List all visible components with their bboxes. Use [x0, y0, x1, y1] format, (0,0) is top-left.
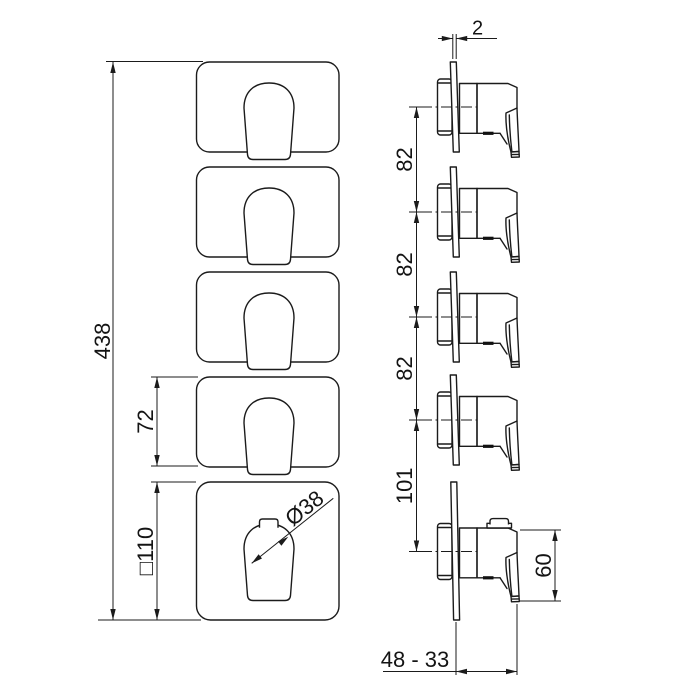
diverter-knob-front [260, 519, 279, 528]
dim-plate-size: □110 [133, 482, 196, 620]
trim-plate-1 [197, 62, 340, 160]
dim-label-72: 72 [133, 409, 158, 433]
dim-handle-height: 60 [520, 530, 561, 601]
dim-label-82-2: 82 [392, 252, 417, 276]
plate-edge-5 [451, 482, 460, 620]
dim-label-60: 60 [531, 553, 556, 577]
dim-label-2: 2 [472, 18, 483, 40]
valve-3 [421, 272, 519, 367]
dim-valve-spacing: 82 82 82 101 [392, 107, 423, 552]
handle-front-1 [244, 83, 294, 160]
technical-drawing-shower-valve: 438 72 □110 Ø38 [0, 0, 700, 700]
dim-label-438: 438 [90, 323, 115, 360]
handle-front-3 [244, 293, 294, 370]
dim-label-48-33: 48 - 33 [381, 647, 450, 672]
diverter-knob-cap [490, 519, 509, 525]
dim-label-82-1: 82 [392, 147, 417, 171]
dim-label-82-3: 82 [392, 356, 417, 380]
dim-label-101: 101 [392, 467, 417, 504]
trim-plate-2 [197, 167, 340, 265]
handle-front-2 [244, 188, 294, 265]
valve-1 [421, 62, 519, 157]
dim-plate-height: 72 [133, 377, 198, 466]
side-view [421, 62, 519, 620]
valve-5 [421, 482, 519, 620]
drawing-svg: 438 72 □110 Ø38 [0, 0, 700, 700]
trim-plate-4 [197, 377, 340, 475]
handle-front-4 [244, 398, 294, 475]
trim-plate-3 [197, 272, 340, 370]
dim-mounting-depth: 48 - 33 [381, 604, 517, 675]
valve-4 [421, 375, 519, 470]
front-view [197, 62, 340, 620]
dim-label-110: □110 [133, 527, 158, 575]
valve-2 [421, 167, 519, 262]
dim-plate-thickness: 2 [438, 18, 497, 60]
